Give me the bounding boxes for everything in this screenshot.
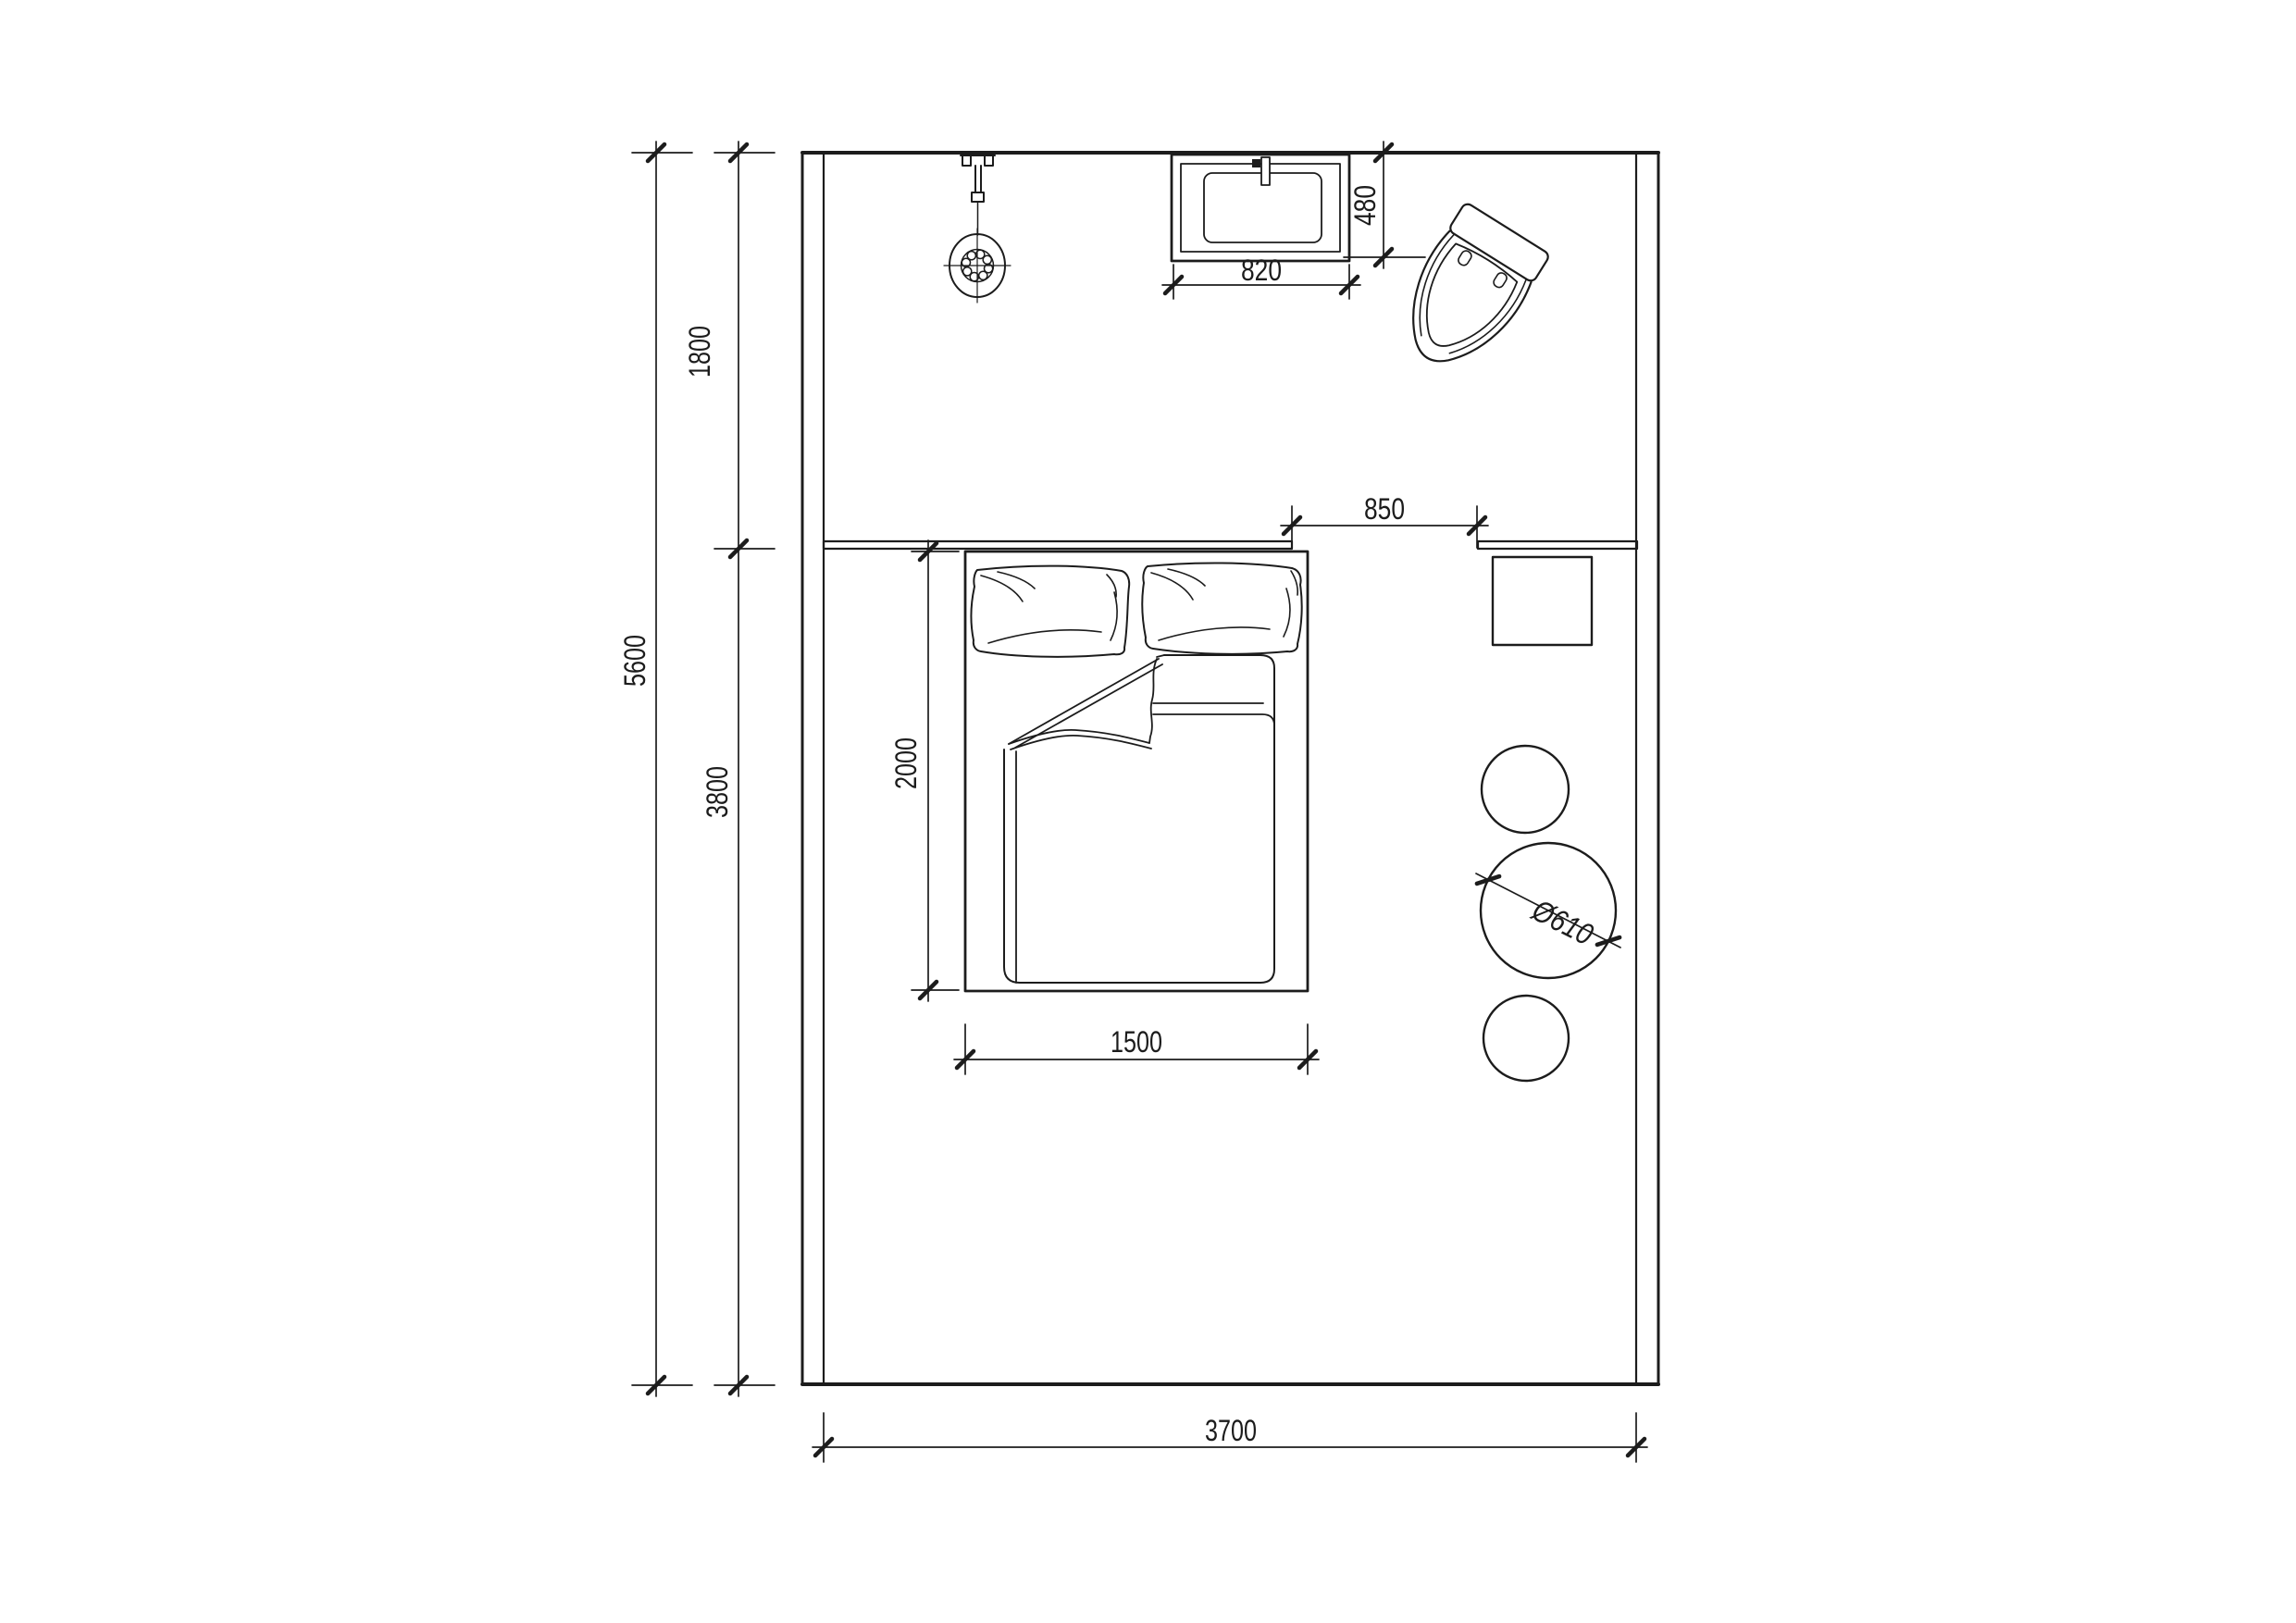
room-walls xyxy=(802,153,1658,1384)
dim-bed-width: 1500 xyxy=(1111,1025,1162,1059)
floor-plan-drawing: 5600 1800 3800 480 820 850 2000 1500 370… xyxy=(0,0,2296,1623)
dim-zone-bottom: 3800 xyxy=(701,766,734,818)
dim-bed-length: 2000 xyxy=(889,737,923,789)
square-stool-icon xyxy=(1493,557,1592,645)
right-furniture xyxy=(1481,557,1616,1081)
shower-head-icon xyxy=(944,155,1011,303)
dim-room-width: 3700 xyxy=(1205,1414,1257,1447)
round-stool-top-icon xyxy=(1482,746,1569,833)
dim-height-total: 5600 xyxy=(618,635,652,687)
dim-zone-top: 1800 xyxy=(683,326,716,378)
faucet-icon xyxy=(1261,157,1270,185)
dim-table-diameter: Ø610 xyxy=(1526,892,1599,951)
round-stool-bottom-icon xyxy=(1483,996,1569,1081)
partition-left xyxy=(824,541,1292,549)
dimension-labels: 5600 1800 3800 480 820 850 2000 1500 370… xyxy=(618,185,1599,1447)
partition-wall xyxy=(824,541,1637,549)
pillow-right-icon xyxy=(1142,563,1301,653)
floor-plan-page: 5600 1800 3800 480 820 850 2000 1500 370… xyxy=(0,0,2296,1623)
dim-sink-width: 820 xyxy=(1241,254,1282,287)
double-bed-icon xyxy=(965,551,1308,991)
pillow-left-icon xyxy=(971,566,1129,657)
dimension-lines xyxy=(632,142,1647,1462)
dim-opening: 850 xyxy=(1364,492,1405,526)
washbasin-icon xyxy=(1172,155,1349,261)
partition-right xyxy=(1478,541,1637,549)
dim-sink-depth: 480 xyxy=(1348,185,1382,226)
dimension-ticks xyxy=(648,144,1644,1456)
faucet-handle-icon xyxy=(1252,159,1260,167)
duvet-icon xyxy=(1004,655,1274,983)
toilet-icon xyxy=(1384,202,1552,385)
